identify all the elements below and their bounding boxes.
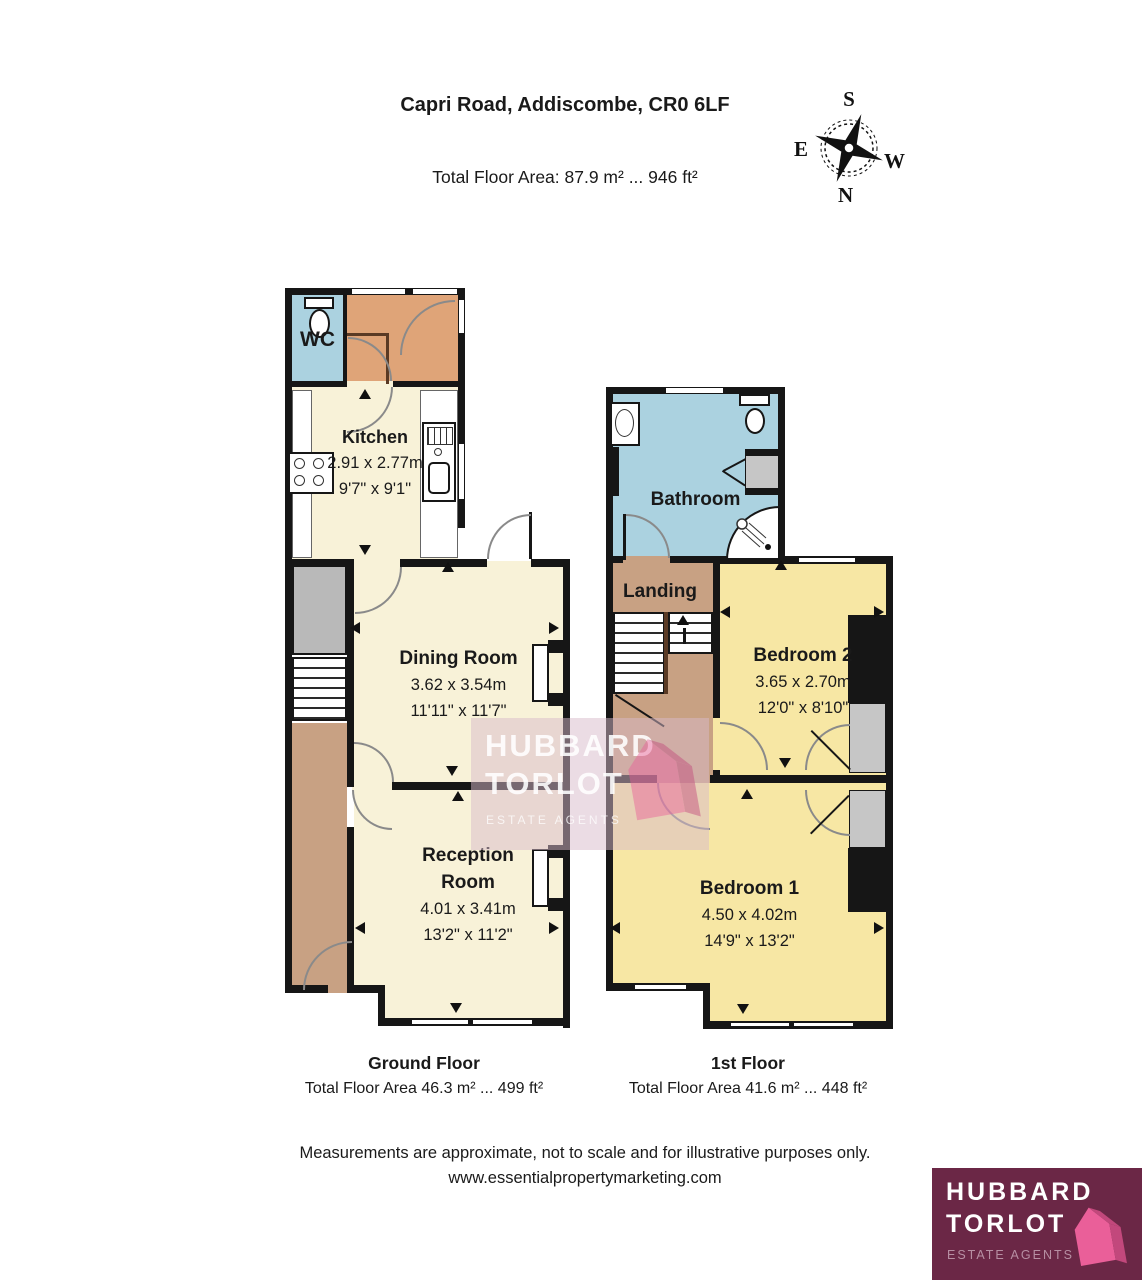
- room-dim-metric: 4.01 x 3.41m: [403, 896, 533, 922]
- room-label-bedroom1: Bedroom 1 4.50 x 4.02m 14'9" x 13'2": [613, 875, 886, 954]
- compass-west: W: [884, 149, 905, 173]
- floorplan-canvas: Capri Road, Addiscombe, CR0 6LF Total Fl…: [0, 0, 1142, 1280]
- room-label-dining: Dining Room 3.62 x 3.54m 11'11" x 11'7": [354, 645, 563, 724]
- basin-bowl-icon: [615, 409, 634, 437]
- window: [458, 443, 465, 500]
- disclaimer-text: Measurements are approximate, not to sca…: [150, 1141, 1020, 1166]
- room-dim-metric: 3.65 x 2.70m: [720, 669, 886, 695]
- footer: Measurements are approximate, not to sca…: [150, 1141, 1020, 1191]
- window: [730, 1022, 790, 1027]
- floor-area: Total Floor Area 46.3 m² ... 499 ft²: [254, 1076, 594, 1102]
- shower-spray-icon: [732, 514, 776, 556]
- room-name: Bedroom 1: [613, 875, 886, 902]
- dimension-arrow: [874, 606, 884, 618]
- dimension-arrow: [450, 1003, 462, 1013]
- dimension-arrow: [359, 389, 371, 399]
- toilet-cistern-icon: [304, 297, 334, 309]
- wall-segment: [343, 293, 347, 385]
- partition-line: [347, 333, 388, 336]
- house-icon: [623, 730, 701, 830]
- dimension-arrow: [452, 791, 464, 801]
- dimension-arrow: [741, 789, 753, 799]
- room-label-bathroom: Bathroom: [613, 486, 778, 513]
- fireplace: [532, 849, 549, 907]
- wall-segment: [347, 559, 354, 787]
- agency-logo: HUBBARD TORLOT ESTATE AGENTS: [932, 1168, 1142, 1280]
- window: [472, 1019, 533, 1025]
- room-floor: [352, 782, 392, 790]
- website-text: www.essentialpropertymarketing.com: [150, 1166, 1020, 1191]
- partition-line: [664, 612, 668, 694]
- window: [798, 557, 856, 563]
- house-icon: [1070, 1201, 1128, 1273]
- floor-area: Total Floor Area 41.6 m² ... 448 ft²: [583, 1076, 913, 1102]
- dimension-arrow: [779, 758, 791, 768]
- room-name: Bathroom: [613, 486, 778, 513]
- dimension-arrow: [549, 622, 559, 634]
- window: [458, 299, 465, 334]
- dimension-arrow: [350, 622, 360, 634]
- logo-tagline: ESTATE AGENTS: [947, 1248, 1074, 1262]
- wall-segment: [606, 556, 623, 563]
- wall-segment: [285, 381, 347, 387]
- floor-title: 1st Floor: [583, 1050, 913, 1076]
- room-floor: [713, 718, 720, 770]
- page-title: Capri Road, Addiscombe, CR0 6LF: [280, 94, 850, 117]
- room-dim-imperial: 12'0" x 8'10": [720, 695, 886, 721]
- dimension-arrow: [720, 606, 730, 618]
- compass-rose-icon: S E W N: [790, 84, 908, 206]
- room-name: Dining Room: [354, 645, 563, 672]
- first-floor-caption: 1st Floor Total Floor Area 41.6 m² ... 4…: [583, 1050, 913, 1102]
- room-name: Landing: [604, 578, 716, 605]
- room-label-landing: Landing: [604, 578, 716, 605]
- room-dim-metric: 2.91 x 2.77m: [292, 450, 458, 476]
- window: [634, 984, 687, 990]
- wall-segment: [886, 556, 893, 1029]
- compass-east: E: [794, 137, 808, 161]
- window: [351, 288, 406, 295]
- room-label-reception: Reception Room 4.01 x 3.41m 13'2" x 11'2…: [403, 842, 533, 948]
- room-dim-imperial: 13'2" x 11'2": [403, 922, 533, 948]
- room-dim-imperial: 14'9" x 13'2": [613, 928, 886, 954]
- floor-title: Ground Floor: [254, 1050, 594, 1076]
- wardrobe: [745, 455, 779, 489]
- window: [411, 1019, 469, 1025]
- staircase: [613, 612, 665, 694]
- dimension-arrow: [775, 560, 787, 570]
- wall-segment: [670, 556, 715, 563]
- room-name: WC: [292, 328, 343, 352]
- room-name: Bedroom 2: [720, 642, 886, 669]
- wardrobe: [849, 790, 886, 848]
- room-label-bedroom2: Bedroom 2 3.65 x 2.70m 12'0" x 8'10": [720, 642, 886, 721]
- room-name: Reception Room: [403, 842, 533, 896]
- storage-area: [292, 563, 347, 655]
- wall-segment: [710, 775, 893, 783]
- watermark-text: TORLOT: [485, 766, 624, 802]
- ground-floor-caption: Ground Floor Total Floor Area 46.3 m² ..…: [254, 1050, 594, 1102]
- dimension-arrow: [549, 922, 559, 934]
- dimension-arrow: [359, 545, 371, 555]
- room-dim-metric: 3.62 x 3.54m: [354, 672, 563, 698]
- window: [412, 288, 458, 295]
- window: [665, 387, 724, 394]
- room-floor: [385, 986, 563, 1019]
- watermark-text: ESTATE AGENTS: [486, 813, 622, 827]
- compass-north: N: [838, 183, 853, 206]
- room-dim-metric: 4.50 x 4.02m: [613, 902, 886, 928]
- wall-segment: [285, 559, 347, 567]
- chimney-block: [548, 898, 570, 911]
- wall-segment: [393, 381, 458, 387]
- total-floor-area: Total Floor Area: 87.9 m² ... 946 ft²: [280, 167, 850, 188]
- toilet-cistern-icon: [739, 394, 770, 406]
- room-dim-imperial: 9'7" x 9'1": [292, 476, 458, 502]
- watermark: HUBBARD TORLOT ESTATE AGENTS: [471, 718, 709, 850]
- dimension-arrow: [677, 615, 689, 625]
- logo-text: TORLOT: [946, 1210, 1066, 1239]
- dimension-arrow: [442, 562, 454, 572]
- staircase: [668, 612, 713, 654]
- window: [793, 1022, 854, 1027]
- chimney-block: [683, 628, 686, 644]
- room-name: Kitchen: [292, 424, 458, 450]
- dimension-arrow: [355, 922, 365, 934]
- room-label-kitchen: Kitchen 2.91 x 2.77m 9'7" x 9'1": [292, 424, 458, 502]
- wall-segment: [285, 288, 292, 993]
- dimension-arrow: [446, 766, 458, 776]
- room-floor: [710, 983, 886, 1021]
- room-label-wc: WC: [292, 328, 343, 352]
- toilet-bowl-icon: [745, 408, 765, 434]
- staircase: [292, 657, 347, 721]
- dimension-arrow: [737, 1004, 749, 1014]
- compass-south: S: [843, 87, 855, 111]
- door-swing-arc: [487, 514, 531, 559]
